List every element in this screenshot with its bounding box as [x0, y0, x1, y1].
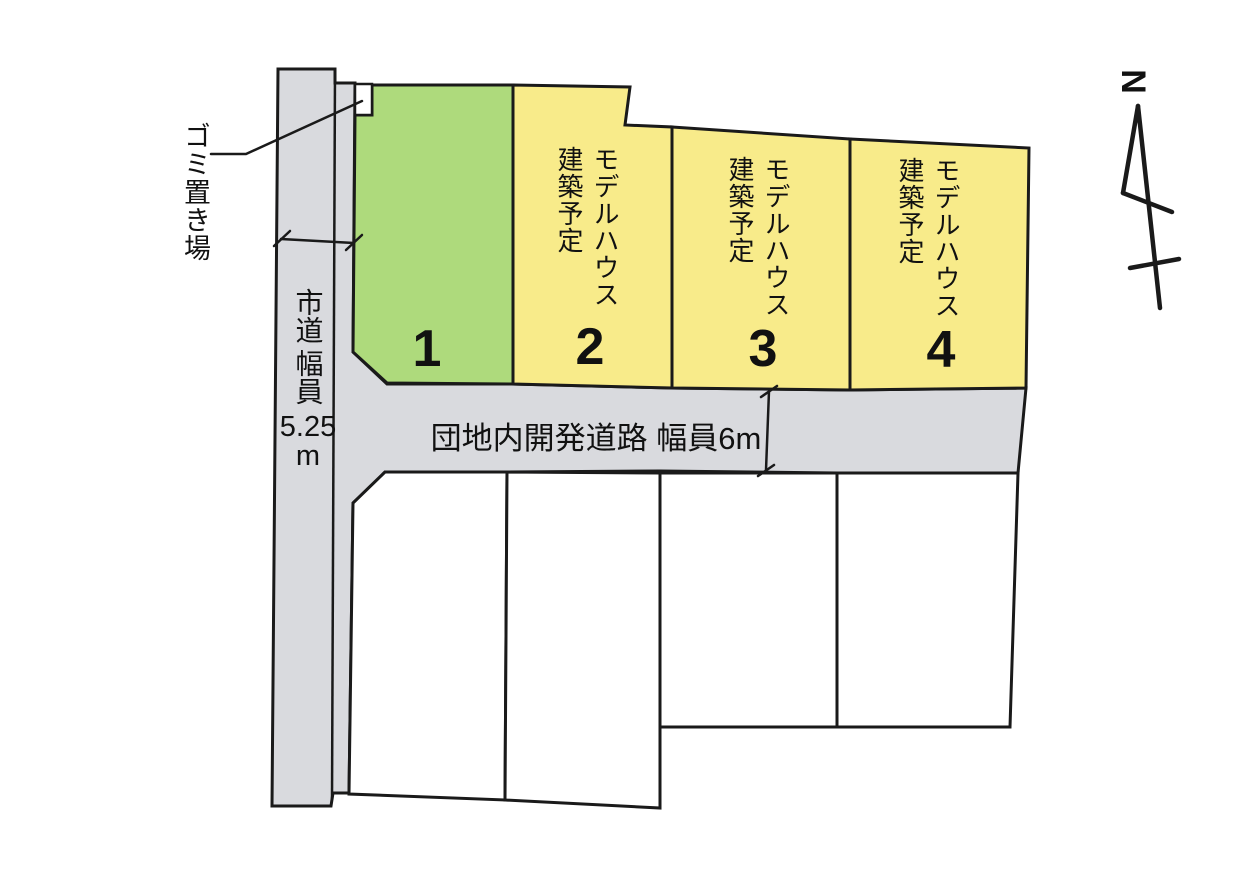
- city-road-width-value: 5.25: [280, 414, 336, 441]
- city-road-label: 市道 幅員 5.25 m: [279, 288, 337, 470]
- lot-1-number: 1: [413, 319, 442, 379]
- lot-3-number: 3: [749, 319, 778, 379]
- site-plan: ゴミ置き場 市道 幅員 5.25 m 団地内開発道路 幅員6m 1 2 3 4 …: [0, 0, 1250, 870]
- north-arrow: [1123, 106, 1179, 308]
- south-lot-2-shape: [505, 472, 660, 808]
- south-lot-1-shape: [349, 472, 507, 800]
- south-lot-3-shape: [660, 473, 837, 727]
- city-road-name: 市道: [293, 288, 324, 344]
- lot-3-status: モデルハウス建築予定: [718, 156, 794, 324]
- garbage-area-label: ゴミ置き場: [176, 122, 215, 262]
- south-lot-4-shape: [837, 473, 1018, 727]
- garbage-notch-shape: [355, 84, 372, 115]
- city-road-width-label: 幅員: [293, 349, 324, 405]
- lot-2-number: 2: [576, 317, 605, 377]
- north-label: N: [1113, 69, 1152, 94]
- city-road-width-unit: m: [296, 443, 320, 470]
- lot-4-number: 4: [927, 320, 956, 380]
- dev-road-label: 団地内開発道路 幅員6m: [428, 413, 764, 458]
- lot-2-status: モデルハウス建築予定: [547, 146, 623, 314]
- lot-4-status: モデルハウス建築予定: [888, 157, 964, 325]
